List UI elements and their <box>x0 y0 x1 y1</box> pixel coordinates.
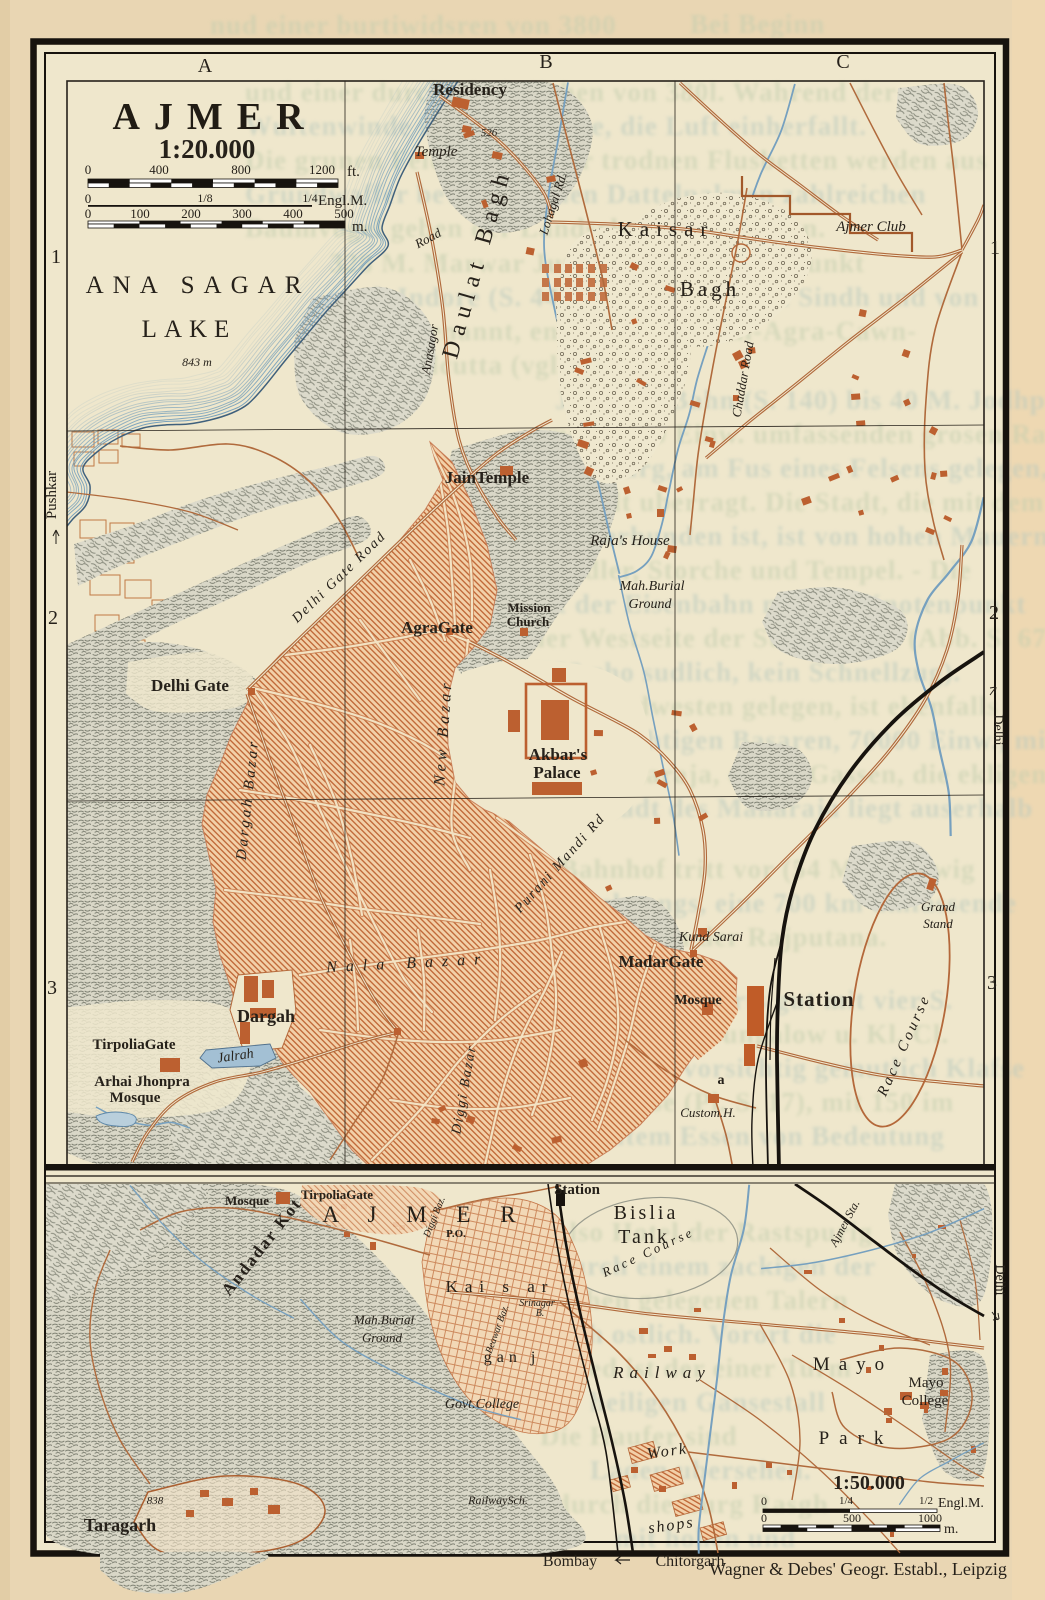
svg-text:1/4: 1/4 <box>302 191 317 205</box>
svg-text:Ajmer Club: Ajmer Club <box>835 219 906 235</box>
svg-text:Temple: Temple <box>415 144 458 160</box>
svg-text:m.: m. <box>352 219 367 235</box>
svg-text:Taragarh: Taragarh <box>84 1515 156 1535</box>
svg-text:Bombay: Bombay <box>543 1553 597 1570</box>
svg-text:1000: 1000 <box>918 1511 942 1525</box>
svg-text:800: 800 <box>231 162 251 177</box>
svg-text:also Hotel der Rastspurig: also Hotel der Rastspurig <box>555 1217 873 1247</box>
svg-text:A J M E R: A J M E R <box>322 1202 527 1227</box>
svg-text:3: 3 <box>987 972 997 994</box>
svg-text:ft.: ft. <box>347 164 360 180</box>
svg-text:1:50.000: 1:50.000 <box>833 1472 905 1494</box>
svg-text:Mosque: Mosque <box>110 1090 161 1106</box>
svg-text:ANA SAGAR: ANA SAGAR <box>86 272 311 299</box>
svg-text:0: 0 <box>761 1511 767 1525</box>
svg-text:3: 3 <box>47 977 57 999</box>
svg-text:1: 1 <box>990 237 1000 259</box>
svg-text:Delhi: Delhi <box>990 714 1005 745</box>
svg-text:TirpoliaGate: TirpoliaGate <box>301 1187 373 1202</box>
svg-text:Custom.H.: Custom.H. <box>680 1105 736 1120</box>
svg-text:1:20.000: 1:20.000 <box>159 134 256 164</box>
svg-text:Park: Park <box>819 1428 894 1449</box>
svg-text:1: 1 <box>51 246 61 268</box>
svg-text:gutem Essen von Bedeutung: gutem Essen von Bedeutung <box>595 1121 945 1151</box>
svg-text:B.: B. <box>536 1308 545 1319</box>
svg-text:AJMER: AJMER <box>112 96 317 138</box>
svg-text:843 m: 843 m <box>182 355 212 369</box>
svg-text:Akbar's: Akbar's <box>529 745 588 764</box>
svg-text:1200: 1200 <box>309 162 335 177</box>
svg-text:MadarGate: MadarGate <box>619 952 704 971</box>
svg-text:LAKE: LAKE <box>142 316 237 343</box>
svg-text:Mayo: Mayo <box>909 1375 944 1391</box>
svg-text:m.: m. <box>944 1522 958 1537</box>
svg-text:College: College <box>902 1393 949 1409</box>
svg-text:400: 400 <box>283 206 303 221</box>
svg-text:Wagner & Debes' Geogr. Establ.: Wagner & Debes' Geogr. Establ., Leipzig <box>709 1559 1007 1579</box>
svg-text:JainTemple: JainTemple <box>445 468 530 487</box>
svg-text:Delhi Gate: Delhi Gate <box>151 676 229 695</box>
svg-text:Stand: Stand <box>923 916 953 931</box>
svg-text:P.O.: P.O. <box>446 1228 466 1240</box>
svg-text:1/2: 1/2 <box>919 1495 933 1507</box>
svg-text:0: 0 <box>85 206 92 221</box>
svg-text:500: 500 <box>843 1511 861 1525</box>
svg-text:500: 500 <box>334 206 354 221</box>
svg-text:0: 0 <box>761 1494 767 1508</box>
svg-text:526: 526 <box>481 127 498 139</box>
svg-text:400: 400 <box>149 162 169 177</box>
svg-text:1/4: 1/4 <box>839 1495 854 1507</box>
svg-text:a: a <box>718 1073 725 1088</box>
svg-text:B: B <box>539 51 552 73</box>
svg-text:Mosque: Mosque <box>674 993 721 1008</box>
svg-text:Mah.Burial: Mah.Burial <box>619 579 685 594</box>
svg-text:Govt.College: Govt.College <box>445 1397 519 1412</box>
svg-text:Kai s ar: Kai s ar <box>446 1277 555 1296</box>
svg-text:Station: Station <box>783 987 854 1011</box>
svg-text:Dargah: Dargah <box>237 1006 295 1026</box>
svg-text:Kaisar: Kaisar <box>618 217 715 241</box>
svg-text:Station: Station <box>554 1182 601 1198</box>
svg-text:C: C <box>836 51 849 73</box>
svg-text:Mosque: Mosque <box>225 1193 269 1208</box>
svg-text:A: A <box>198 55 213 77</box>
svg-text:Residency: Residency <box>433 80 507 99</box>
svg-text:heiligen Gansestall: heiligen Gansestall <box>590 1387 826 1417</box>
svg-text:2: 2 <box>48 607 58 629</box>
svg-text:Kund Sarai: Kund Sarai <box>678 930 743 945</box>
svg-text:Engl.M.: Engl.M. <box>938 1496 984 1511</box>
svg-text:Mayo: Mayo <box>813 1354 893 1375</box>
svg-text:300: 300 <box>232 206 252 221</box>
svg-text:838: 838 <box>147 1495 164 1507</box>
svg-text:Ground: Ground <box>628 597 672 612</box>
svg-text:Church: Church <box>507 614 550 629</box>
svg-text:200: 200 <box>181 206 201 221</box>
svg-text:TirpoliaGate: TirpoliaGate <box>92 1037 175 1053</box>
svg-text:Railway: Railway <box>612 1363 711 1382</box>
svg-text:Ground: Ground <box>362 1330 402 1345</box>
svg-text:Mah.Burial: Mah.Burial <box>353 1312 415 1327</box>
svg-text:Bagh: Bagh <box>680 277 740 301</box>
svg-text:RailwaySch.: RailwaySch. <box>467 1493 528 1507</box>
svg-text:Bei Beginn: Bei Beginn <box>690 9 825 39</box>
svg-text:Bislia: Bislia <box>614 1202 679 1224</box>
svg-text:0: 0 <box>85 191 92 206</box>
svg-text:Delhi: Delhi <box>992 1264 1007 1295</box>
svg-text:Mission: Mission <box>507 600 551 615</box>
svg-text:hohen gelegenen Talern: hohen gelegenen Talern <box>555 1285 849 1315</box>
svg-text:100: 100 <box>130 206 150 221</box>
svg-text:nud einer burtiwidsren von: nud einer burtiwidsren von 3800 <box>210 10 617 40</box>
svg-text:Raja's House: Raja's House <box>589 533 670 549</box>
svg-text:Pushkar: Pushkar <box>44 471 60 519</box>
svg-text:Arhai Jhonpra: Arhai Jhonpra <box>94 1074 190 1090</box>
svg-text:2: 2 <box>989 602 999 624</box>
svg-text:1/8: 1/8 <box>197 191 212 205</box>
svg-text:AgraGate: AgraGate <box>401 618 473 637</box>
svg-text:0: 0 <box>85 162 92 177</box>
svg-text:Palace: Palace <box>533 763 581 782</box>
svg-text:Grand: Grand <box>921 899 955 914</box>
